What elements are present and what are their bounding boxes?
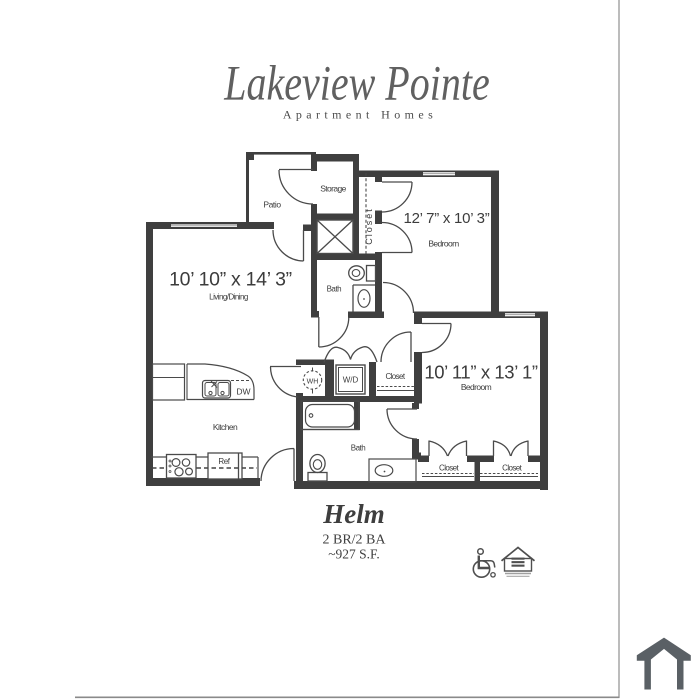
svg-text:12’ 7” x 10’ 3”: 12’ 7” x 10’ 3” <box>403 210 489 227</box>
svg-text:DW: DW <box>236 387 250 397</box>
svg-text:WH: WH <box>307 379 319 386</box>
svg-text:Ref: Ref <box>218 457 230 466</box>
svg-text:Bedroom: Bedroom <box>428 239 459 249</box>
svg-text:Living/Dining: Living/Dining <box>209 293 248 302</box>
svg-text:Helm: Helm <box>322 499 385 529</box>
svg-text:10’ 10” x 14’ 3”: 10’ 10” x 14’ 3” <box>169 269 292 291</box>
svg-text:2 BR/2 BA: 2 BR/2 BA <box>322 533 386 548</box>
svg-text:W/D: W/D <box>343 376 359 385</box>
svg-text:Patio: Patio <box>263 200 281 210</box>
svg-text:10’ 11” x 13’ 1”: 10’ 11” x 13’ 1” <box>424 362 537 383</box>
svg-text:Lakeview Pointe: Lakeview Pointe <box>223 55 489 110</box>
svg-text:Bath: Bath <box>327 284 342 293</box>
svg-text:Closet: Closet <box>385 372 405 381</box>
svg-text:Closet: Closet <box>502 464 522 473</box>
svg-text:Closet: Closet <box>439 464 459 473</box>
svg-text:Bath: Bath <box>351 444 366 453</box>
svg-text:Apartment Homes: Apartment Homes <box>283 108 437 122</box>
svg-text:Kitchen: Kitchen <box>213 422 238 432</box>
svg-text:Bedroom: Bedroom <box>461 382 492 392</box>
svg-text:Closet: Closet <box>364 207 374 245</box>
svg-text:Storage: Storage <box>320 183 346 193</box>
svg-text:~927 S.F.: ~927 S.F. <box>328 547 380 562</box>
